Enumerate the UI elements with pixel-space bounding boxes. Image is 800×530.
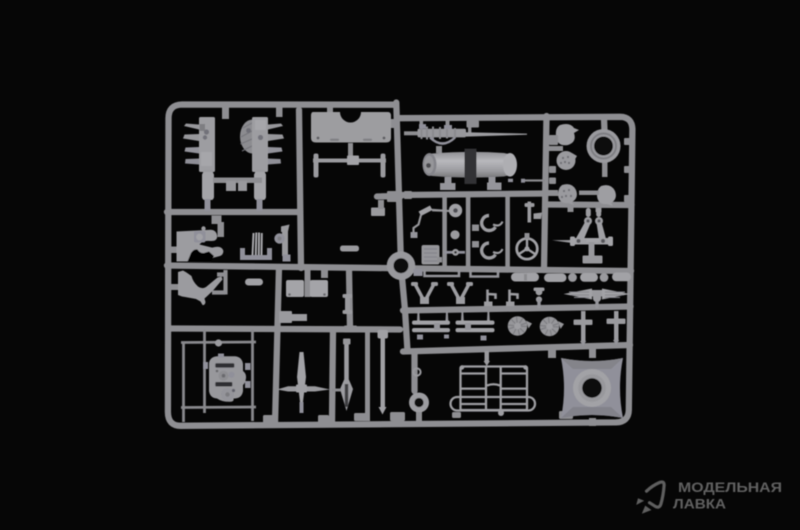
svg-text:МОДЕЛЬНАЯ: МОДЕЛЬНАЯ: [678, 480, 782, 496]
svg-text:ЛАВКА: ЛАВКА: [673, 497, 726, 513]
